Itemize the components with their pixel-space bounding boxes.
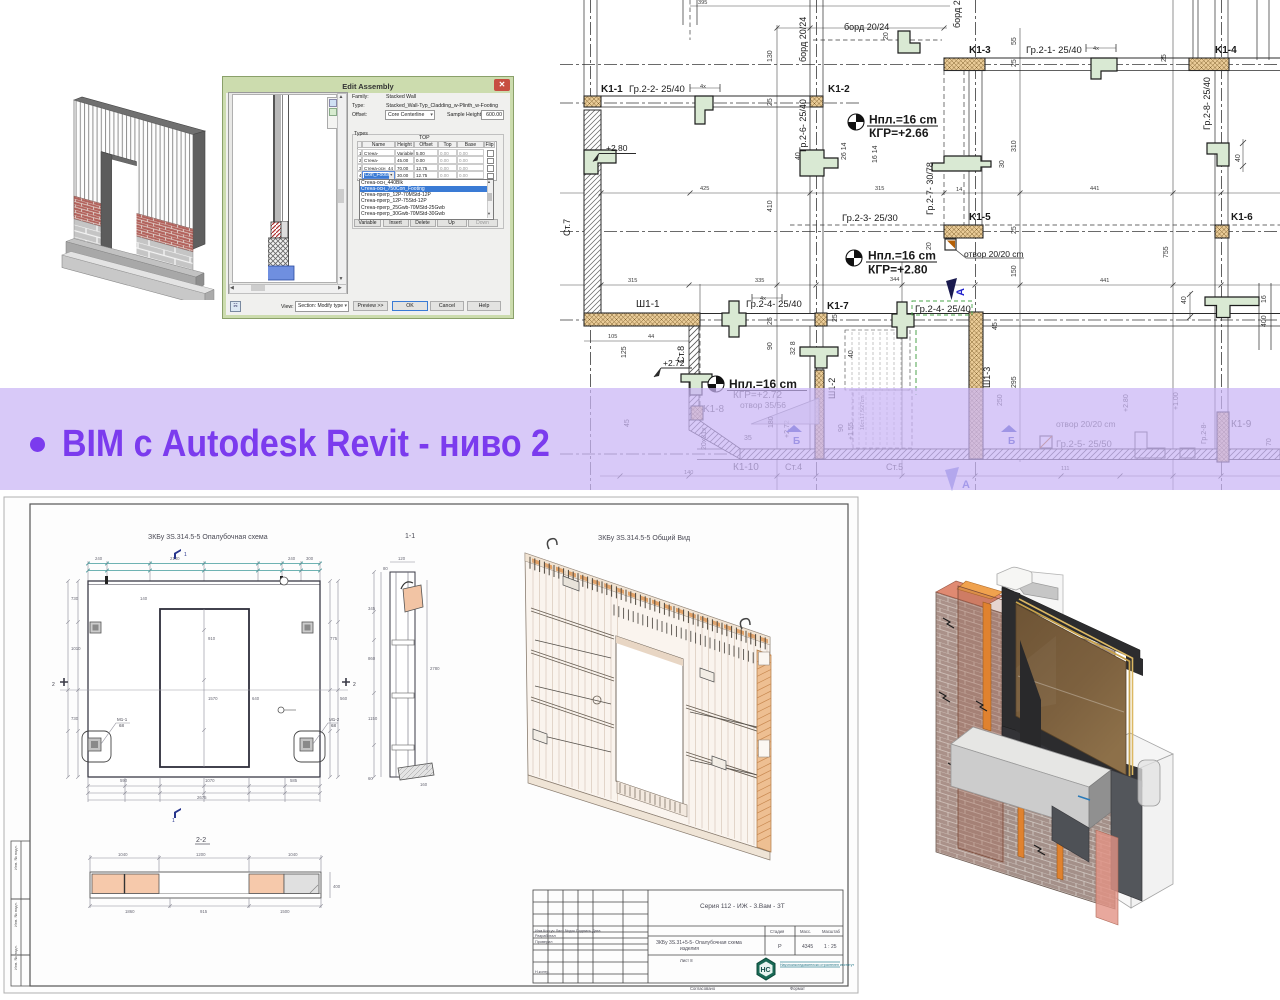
svg-text:Н.контр.: Н.контр. [535, 970, 550, 974]
svg-text:560: 560 [340, 696, 348, 701]
svg-text:K1-5: K1-5 [969, 212, 991, 223]
svg-text:4x: 4x [1093, 46, 1099, 52]
svg-text:1: 1 [184, 552, 187, 558]
svg-text:Проверил: Проверил [535, 940, 553, 944]
svg-text:K1-1: K1-1 [601, 84, 623, 95]
svg-text:441: 441 [1100, 278, 1109, 284]
svg-text:1 : 25: 1 : 25 [824, 944, 837, 950]
svg-text:300: 300 [306, 556, 314, 561]
svg-text:160: 160 [420, 782, 428, 787]
svg-text:55: 55 [1011, 37, 1018, 45]
svg-text:25: 25 [767, 317, 774, 325]
svg-text:20: 20 [926, 242, 933, 250]
svg-text:Гр.2-8- 25/40: Гр.2-8- 25/40 [1202, 77, 1212, 130]
svg-text:борд 20/24: борд 20/24 [952, 0, 962, 28]
svg-text:4x: 4x [760, 296, 766, 302]
svg-text:400: 400 [333, 884, 341, 889]
svg-text:25: 25 [832, 314, 839, 322]
svg-text:Лист 8: Лист 8 [680, 958, 693, 963]
svg-text:25: 25 [767, 98, 774, 106]
svg-text:Серия 112 - ИЖ - 3.Вам - 3Т: Серия 112 - ИЖ - 3.Вам - 3Т [700, 903, 785, 910]
svg-text:КГР=+2.66: КГР=+2.66 [869, 126, 929, 140]
svg-text:240: 240 [95, 556, 103, 561]
svg-text:Инв. № подл.: Инв. № подл. [13, 845, 18, 870]
svg-text:150: 150 [1011, 265, 1018, 277]
svg-text:Инв. № подл.: Инв. № подл. [13, 945, 18, 970]
svg-text:Р: Р [778, 944, 782, 950]
svg-text:25: 25 [1011, 59, 1018, 67]
svg-text:16 14: 16 14 [872, 145, 879, 163]
svg-text:105: 105 [608, 334, 617, 340]
svg-text:80: 80 [383, 566, 388, 571]
svg-text:K1-2: K1-2 [828, 84, 850, 95]
svg-text:Гр.2-4- 25/40: Гр.2-4- 25/40 [746, 299, 802, 310]
svg-text:1010: 1010 [71, 646, 81, 651]
svg-text:730: 730 [71, 716, 79, 721]
svg-text:2-2: 2-2 [196, 837, 206, 844]
svg-text:Гр.2-2- 25/40: Гр.2-2- 25/40 [629, 84, 685, 95]
svg-text:Гр.2-3- 25/30: Гр.2-3- 25/30 [842, 213, 898, 224]
svg-text:ЗКБу 3S.314.5-5 Опалубочная сх: ЗКБу 3S.314.5-5 Опалубочная схема [148, 533, 268, 541]
svg-text:М1-1: М1-1 [117, 717, 128, 722]
svg-text:1040: 1040 [288, 852, 298, 857]
svg-text:Масштаб: Масштаб [822, 929, 841, 934]
svg-text:60: 60 [368, 776, 373, 781]
svg-text:120: 120 [398, 556, 406, 561]
svg-text:640: 640 [252, 696, 260, 701]
svg-text:изделия: изделия [680, 946, 699, 952]
svg-text:915: 915 [200, 909, 208, 914]
svg-text:1570: 1570 [208, 696, 218, 701]
svg-text:борд 20/24: борд 20/24 [844, 22, 889, 32]
svg-text:40: 40 [1181, 296, 1188, 304]
svg-text:Гр.2-1- 25/40: Гр.2-1- 25/40 [1026, 45, 1082, 56]
svg-text:344: 344 [890, 277, 899, 283]
svg-text:1860: 1860 [125, 909, 135, 914]
svg-text:1-1: 1-1 [405, 533, 415, 540]
svg-text:Инв. № подл.: Инв. № подл. [13, 902, 18, 927]
svg-text:410: 410 [767, 200, 774, 212]
svg-text:2675: 2675 [197, 795, 207, 800]
svg-text:590: 590 [120, 778, 128, 783]
svg-text:68: 68 [119, 723, 125, 728]
svg-text:860: 860 [368, 656, 376, 661]
svg-text:295: 295 [1011, 376, 1018, 388]
svg-text:395: 395 [698, 0, 707, 6]
svg-text:315: 315 [628, 278, 637, 284]
svg-text:910: 910 [208, 636, 216, 641]
svg-text:585: 585 [290, 778, 298, 783]
svg-text:4x: 4x [700, 84, 706, 90]
svg-text:КГР=+2.80: КГР=+2.80 [868, 263, 928, 277]
svg-text:40: 40 [1235, 154, 1242, 162]
svg-text:775: 775 [330, 636, 338, 641]
svg-text:НС: НС [761, 967, 771, 974]
svg-text:ЗКБу 3S.31+5-5- Опалубочная сх: ЗКБу 3S.31+5-5- Опалубочная схема [656, 940, 742, 946]
svg-text:240: 240 [288, 556, 296, 561]
svg-text:Ш1-1: Ш1-1 [636, 299, 660, 310]
svg-text:борд 20/24: борд 20/24 [798, 17, 808, 62]
svg-text:Гр.2-6- 25/40: Гр.2-6- 25/40 [798, 99, 808, 152]
svg-text:425: 425 [700, 186, 709, 192]
svg-text:Нпл.=16 cm: Нпл.=16 cm [869, 113, 937, 127]
svg-text:130: 130 [767, 50, 774, 62]
svg-text:310: 310 [1011, 140, 1018, 152]
svg-text:2: 2 [52, 682, 55, 688]
svg-text:4345: 4345 [802, 944, 813, 950]
svg-text:K1-7: K1-7 [827, 301, 849, 312]
svg-text:K1-4: K1-4 [1215, 45, 1237, 56]
svg-text:Масс.: Масс. [800, 929, 811, 934]
svg-text:1500: 1500 [280, 909, 290, 914]
svg-text:Ст.7: Ст.7 [562, 219, 572, 236]
svg-text:Разработал: Разработал [535, 934, 556, 938]
svg-text:25: 25 [1011, 226, 1018, 234]
svg-text:44: 44 [648, 334, 654, 340]
svg-text:26 14: 26 14 [841, 142, 848, 160]
svg-text:Согласовано: Согласовано [690, 986, 716, 991]
svg-text:140: 140 [140, 596, 148, 601]
svg-text:315: 315 [875, 186, 884, 192]
svg-text:K1-3: K1-3 [969, 45, 991, 56]
svg-text:1070: 1070 [205, 778, 215, 783]
svg-text:14: 14 [956, 187, 962, 193]
svg-text:30: 30 [999, 160, 1006, 168]
svg-text:Изм Кол.уч Лист №док Подпись Д: Изм Кол.уч Лист №док Подпись Дата [535, 929, 601, 933]
svg-text:1200: 1200 [196, 852, 206, 857]
svg-text:400: 400 [1261, 315, 1268, 327]
svg-text:ЗКБу 3S.314.5-5 Общий Вид: ЗКБу 3S.314.5-5 Общий Вид [598, 534, 690, 542]
svg-text:25: 25 [1161, 54, 1168, 62]
svg-text:125: 125 [621, 346, 628, 358]
svg-text:K1-6: K1-6 [1231, 212, 1253, 223]
svg-text:Формат: Формат [790, 986, 805, 991]
svg-text:16: 16 [1261, 295, 1268, 303]
svg-text:68: 68 [331, 723, 337, 728]
svg-text:А: А [955, 288, 967, 296]
svg-text:2: 2 [353, 682, 356, 688]
svg-text:45: 45 [992, 322, 999, 330]
svg-text:отвор 20/20 cm: отвор 20/20 cm [964, 249, 1024, 259]
svg-text:345: 345 [368, 606, 376, 611]
svg-text:1040: 1040 [118, 852, 128, 857]
svg-text:+2.72: +2.72 [663, 358, 685, 368]
svg-text:40: 40 [848, 350, 855, 358]
svg-text:Гр.2-4- 25/40: Гр.2-4- 25/40 [915, 304, 971, 315]
svg-text:32 8: 32 8 [790, 341, 797, 355]
svg-text:1: 1 [172, 818, 175, 824]
svg-text:335: 335 [755, 278, 764, 284]
svg-text:Гр.2-7- 30/78: Гр.2-7- 30/78 [925, 162, 935, 215]
svg-text:2140: 2140 [170, 556, 180, 561]
svg-text:Стадия: Стадия [770, 929, 784, 934]
svg-text:755: 755 [1163, 246, 1170, 258]
svg-text:730: 730 [71, 596, 79, 601]
svg-text:2780: 2780 [430, 666, 440, 671]
svg-text:90: 90 [767, 342, 774, 350]
svg-text:Ш1-3: Ш1-3 [982, 367, 992, 388]
svg-text:441: 441 [1090, 186, 1099, 192]
svg-text:+2.80: +2.80 [606, 143, 628, 153]
svg-text:1150: 1150 [368, 716, 378, 721]
svg-text:40: 40 [795, 152, 802, 160]
svg-text:20: 20 [883, 32, 890, 40]
svg-text:Научноизследователски строител: Научноизследователски строителен институ… [780, 963, 854, 967]
